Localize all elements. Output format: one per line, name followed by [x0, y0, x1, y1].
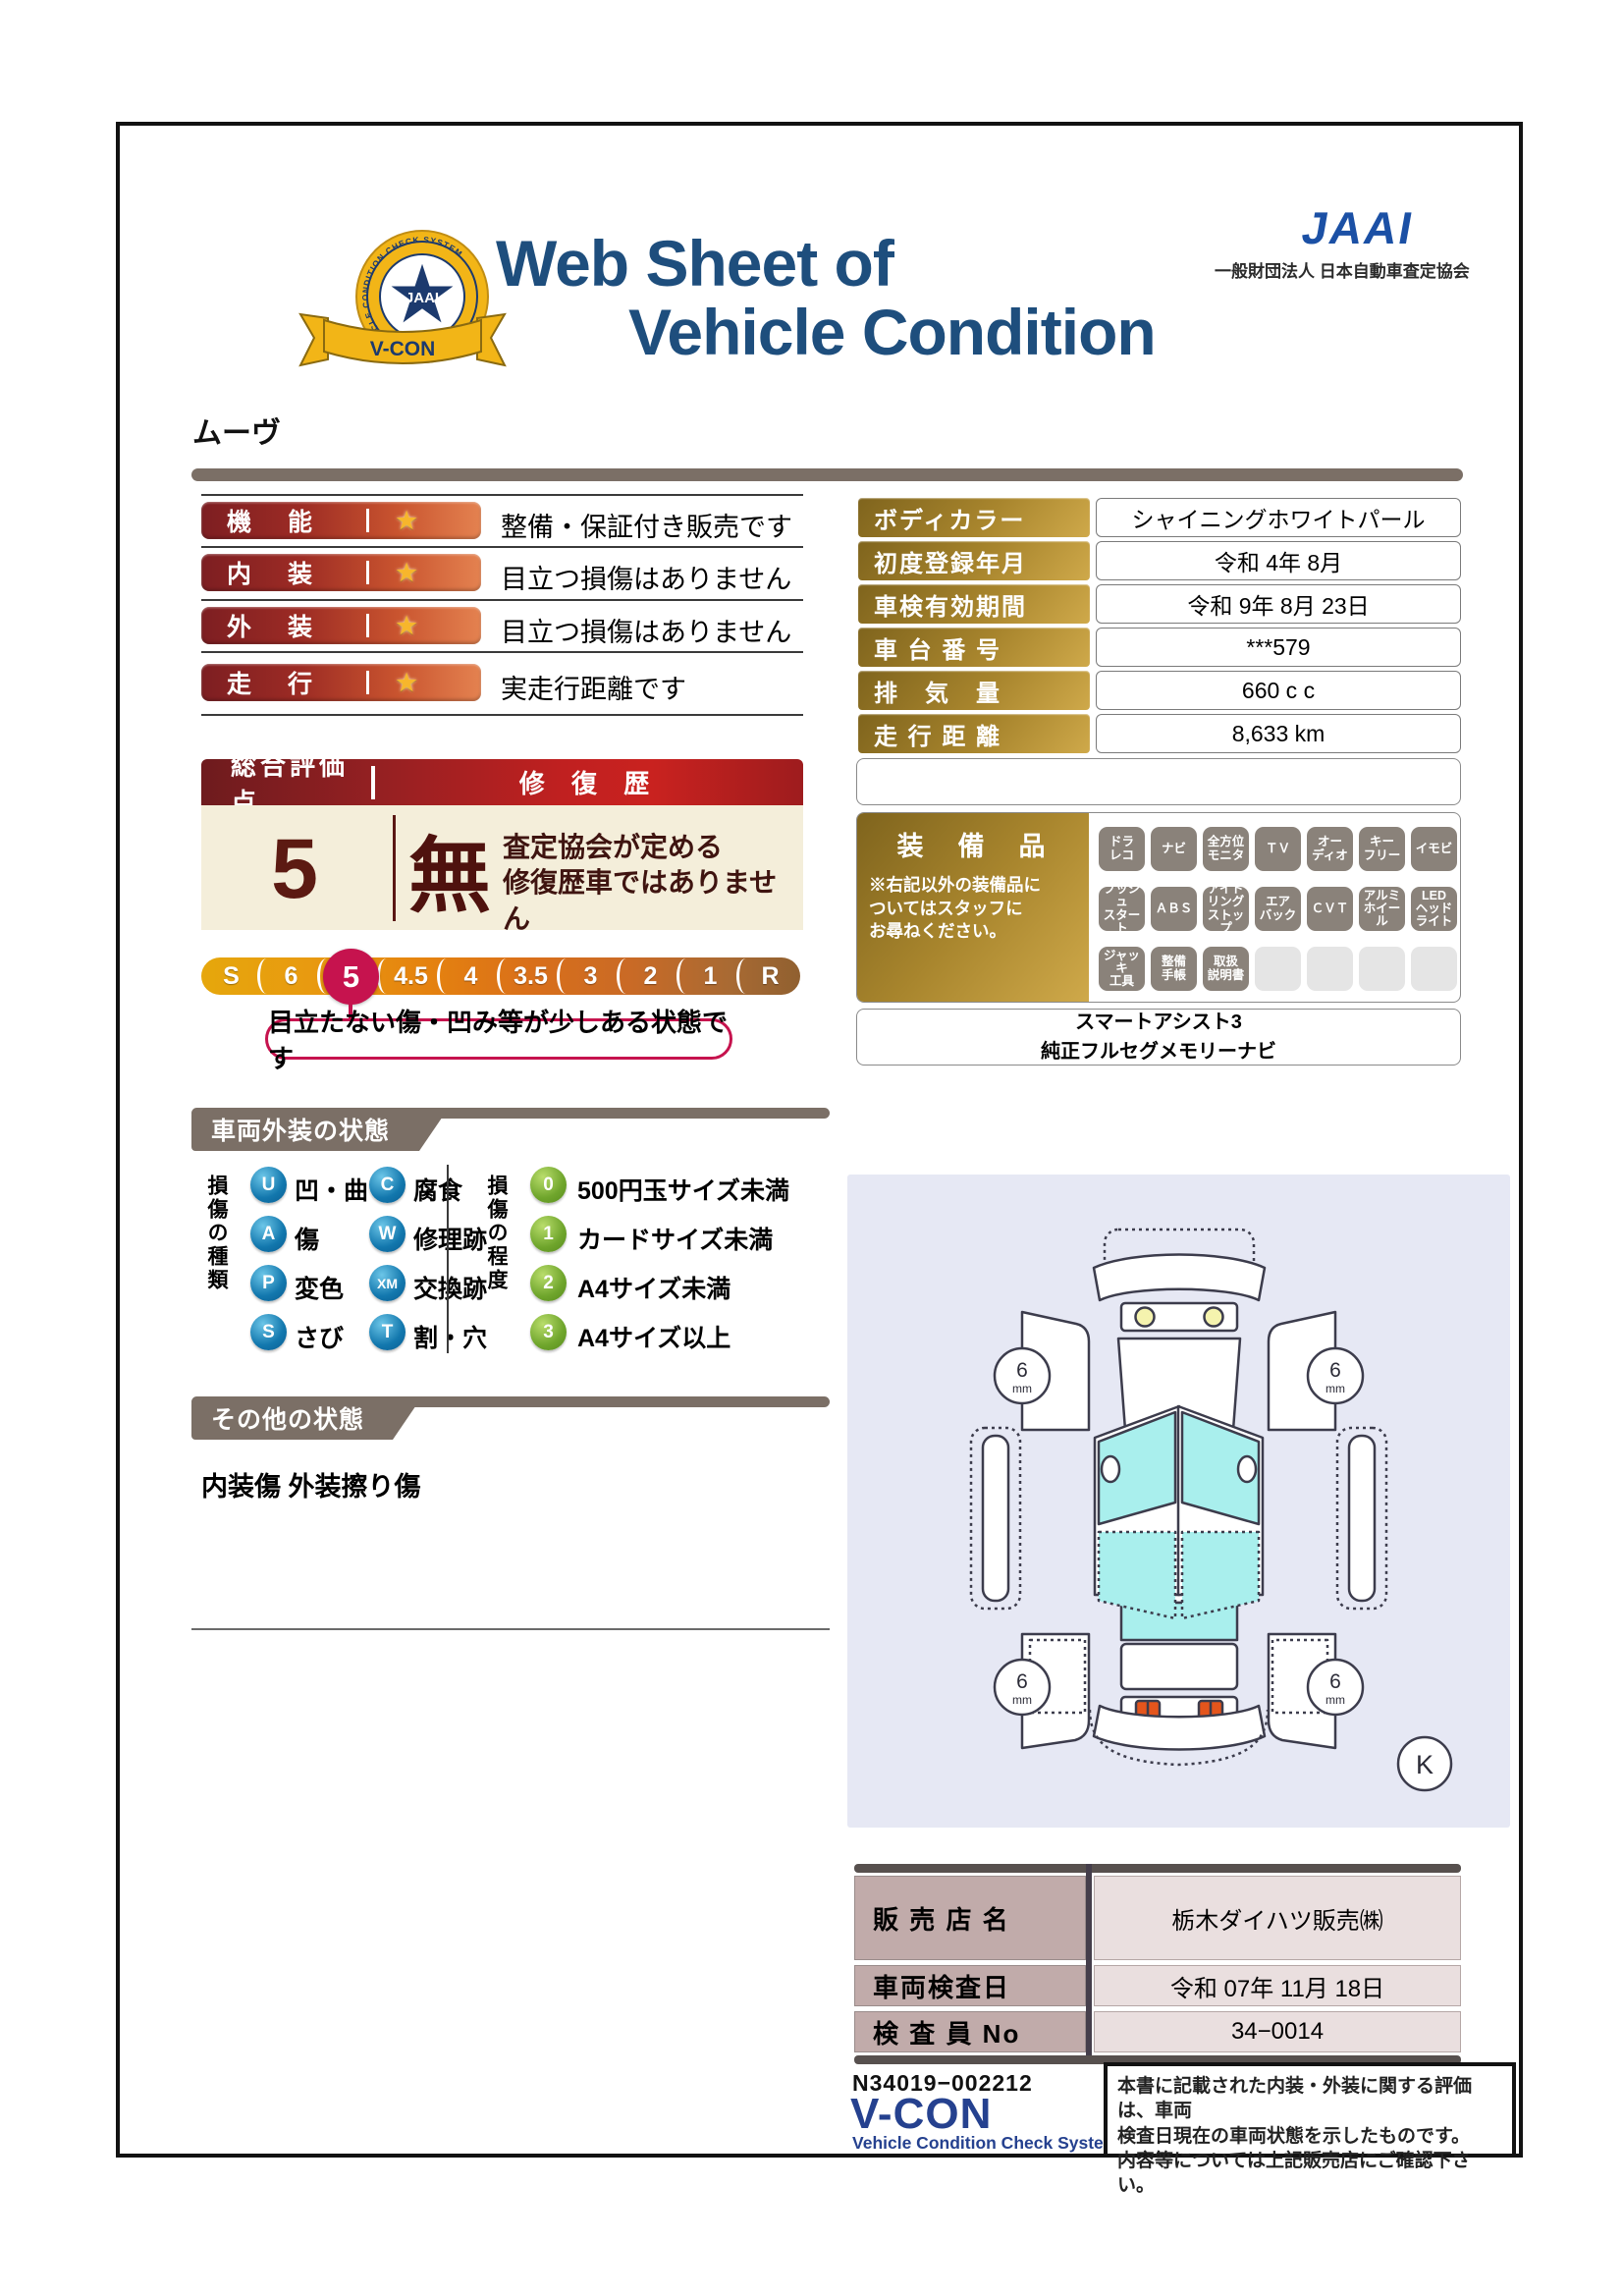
info-label: 走 行 距 離 [858, 714, 1090, 753]
overall-score-header: 総合評価点 修 復 歴 [201, 759, 803, 805]
vcon-logo: V-CON [850, 2090, 992, 2139]
damage-type-label: 交換跡 [413, 1270, 487, 1305]
tread-unit: mm [1012, 1693, 1032, 1707]
damage-type-label: 割・穴 [413, 1319, 487, 1354]
selected-grade-marker: 5 [323, 949, 379, 1005]
equipment-gold-panel: 装 備 品 ※右記以外の装備品に ついてはスタッフに お尋ねください。 [857, 813, 1089, 1002]
info-row: 排 気 量 660 c c [858, 671, 1461, 710]
damage-degree-badge-3: 3 [530, 1314, 567, 1350]
equipment-badge: LED ヘッド ライト [1411, 887, 1457, 931]
info-row: 車 台 番 号 ***579 [858, 628, 1461, 667]
scale-grade-3_5: 3.5 [501, 957, 561, 995]
rating-comment: 実走行距離です [501, 668, 686, 706]
info-row: 初度登録年月 令和 4年 8月 [858, 541, 1461, 580]
remarks-empty-box [856, 758, 1461, 805]
info-value: 令和 9年 8月 23日 [1096, 584, 1461, 624]
tread-unit: mm [1012, 1382, 1032, 1395]
info-row: 走 行 距 離 8,633 km [858, 714, 1461, 753]
extra-equipment-box: スマートアシスト3 純正フルセグメモリーナビ [856, 1009, 1461, 1066]
rating-comment: 目立つ損傷はありません [501, 558, 791, 596]
damage-type-badge-u: U [250, 1167, 287, 1203]
sheet-title-line1: Web Sheet of [496, 226, 893, 301]
dealer-table-top-bar [854, 1864, 1461, 1873]
equipment-title: 装 備 品 [857, 825, 1089, 863]
car-damage-diagram: 6 mm 6 mm 6 mm 6 mm K [847, 1175, 1510, 1828]
front-bumper [1094, 1255, 1265, 1301]
dealer-value: 34−0014 [1094, 2011, 1461, 2052]
dealer-label: 検 査 員 No [854, 2011, 1086, 2052]
rating-pill-exterior: 外 装 ★ [201, 607, 481, 644]
damage-degree-badge-2: 2 [530, 1265, 567, 1301]
scale-grade-1: 1 [680, 957, 740, 995]
dealer-table-divider [1086, 1864, 1092, 2061]
pill-divider [366, 509, 369, 532]
info-label: 排 気 量 [858, 671, 1090, 710]
dealer-value: 栃木ダイハツ販売㈱ [1094, 1876, 1461, 1960]
pill-divider [366, 614, 369, 637]
vcon-subtitle: Vehicle Condition Check System [852, 2133, 1118, 2154]
damage-degree-label: A4サイズ以上 [577, 1319, 730, 1354]
equipment-badge-empty [1307, 947, 1353, 991]
dealer-row: 販 売 店 名 栃木ダイハツ販売㈱ [854, 1876, 1461, 1960]
equipment-badge: プッシュ スタート [1099, 887, 1145, 931]
scale-grade-r: R [740, 957, 800, 995]
scale-grade-s: S [201, 957, 261, 995]
rating-label: 外 装 [201, 608, 366, 643]
overall-score-value: 5 [201, 811, 388, 927]
tread-unit: mm [1325, 1693, 1345, 1707]
equipment-badge: ドラ レコ [1099, 827, 1145, 871]
damage-degrees-label: 損傷の程度 [481, 1175, 511, 1292]
damage-type-label: 腐食 [413, 1172, 462, 1207]
damage-types-label: 損傷の種類 [201, 1175, 231, 1292]
damage-type-badge-a: A [250, 1216, 287, 1252]
equipment-badge: 取扱 説明書 [1203, 947, 1249, 991]
equipment-badge: オー ディオ [1307, 827, 1353, 871]
grade-scale-bar: S 6 4.5 4 3.5 3 2 1 R [201, 957, 800, 995]
headlight-left-icon [1136, 1308, 1155, 1327]
rating-comment: 目立つ損傷はありません [501, 611, 791, 649]
scale-grade-6: 6 [261, 957, 321, 995]
rating-comment: 整備・保証付き販売です [501, 506, 792, 544]
equipment-badge: アルミ ホイール [1359, 887, 1405, 931]
equipment-badge: エア バック [1255, 887, 1301, 931]
tread-unit: mm [1325, 1382, 1345, 1395]
overall-body-divider [393, 815, 396, 921]
jaai-logo: JAAI [1298, 201, 1418, 254]
info-value: 660 c c [1096, 671, 1461, 710]
equipment-box: 装 備 品 ※右記以外の装備品に ついてはスタッフに お尋ねください。 ドラ レ… [856, 812, 1461, 1003]
equipment-badge-empty [1255, 947, 1301, 991]
star-icon: ★ [395, 668, 418, 698]
rating-divider [201, 546, 803, 548]
rating-pill-mileage: 走 行 ★ [201, 664, 481, 701]
damage-type-label: 傷 [295, 1221, 319, 1256]
equipment-badge: ジャッキ 工具 [1099, 947, 1145, 991]
damage-type-label: 修理跡 [413, 1221, 487, 1256]
dealer-row: 検 査 員 No 34−0014 [854, 2011, 1461, 2052]
repair-history-note: 査定協会が定める 修復歴車ではありません [503, 830, 797, 937]
info-row: 車検有効期間 令和 9年 8月 23日 [858, 584, 1461, 624]
info-value: 令和 4年 8月 [1096, 541, 1461, 580]
tread-value: 6 [1016, 1359, 1028, 1382]
damage-type-badge-w: W [369, 1216, 406, 1252]
damage-degree-badge-0: 0 [530, 1167, 567, 1203]
pill-divider [366, 671, 369, 694]
damage-type-badge-xm: XM [369, 1265, 406, 1301]
damage-type-badge-s: S [250, 1314, 287, 1350]
exterior-section-title: 車両外装の状態 [191, 1108, 449, 1151]
legend-divider [447, 1165, 449, 1353]
repair-history-title: 修 復 歴 [375, 764, 803, 800]
damage-type-label: 凹・曲 [295, 1172, 368, 1207]
scale-grade-2: 2 [621, 957, 680, 995]
other-condition-note: 内装傷 外装擦り傷 [201, 1465, 421, 1503]
tread-value: 6 [1016, 1670, 1028, 1693]
info-row: ボディカラー シャイニングホワイトパール [858, 498, 1461, 537]
other-section-title: その他の状態 [191, 1396, 422, 1440]
headlight-right-icon [1205, 1308, 1223, 1327]
scale-grade-4_5: 4.5 [381, 957, 441, 995]
equipment-badge: キー フリー [1359, 827, 1405, 871]
damage-type-label: 変色 [295, 1270, 344, 1305]
tread-value: 6 [1329, 1359, 1341, 1382]
equipment-badge-empty [1411, 947, 1457, 991]
vcon-ribbon-icon: V-CON [295, 312, 511, 373]
equipment-badge: ナビ [1151, 827, 1197, 871]
scale-grade-3: 3 [561, 957, 621, 995]
damage-type-badge-p: P [250, 1265, 287, 1301]
damage-type-badge-c: C [369, 1167, 406, 1203]
top-separator [191, 468, 1463, 481]
damage-degree-label: A4サイズ未満 [577, 1270, 730, 1305]
equipment-note: ※右記以外の装備品に ついてはスタッフに お尋ねください。 [869, 874, 1041, 944]
tailgate-panel [1121, 1644, 1237, 1689]
dealer-label: 車両検査日 [854, 1965, 1086, 2006]
info-value: ***579 [1096, 628, 1461, 667]
equipment-badge: ＡＢＳ [1151, 887, 1197, 931]
other-section-rule [191, 1628, 830, 1630]
equipment-badge: ＣＶＴ [1307, 887, 1353, 931]
equipment-badge-empty [1359, 947, 1405, 991]
pill-divider [366, 561, 369, 584]
sheet-title-line2: Vehicle Condition [628, 295, 1156, 369]
equipment-badge: ＴＶ [1255, 827, 1301, 871]
info-label: 初度登録年月 [858, 541, 1090, 580]
star-icon: ★ [395, 506, 418, 536]
rating-pill-function: 機 能 ★ [201, 502, 481, 539]
dealer-label: 販 売 店 名 [854, 1876, 1086, 1960]
rating-divider [201, 494, 803, 496]
rating-divider [201, 714, 803, 716]
tread-value: 6 [1329, 1670, 1341, 1693]
rating-divider [201, 599, 803, 601]
rating-label: 内 装 [201, 555, 366, 590]
damage-type-label: さび [295, 1319, 344, 1354]
info-label: ボディカラー [858, 498, 1090, 537]
grade-callout: 目立たない傷・凹み等が少しある状態です [265, 1018, 732, 1060]
rating-divider [201, 651, 803, 653]
badge-ribbon-text: V-CON [370, 338, 436, 360]
equipment-badge: 整備 手帳 [1151, 947, 1197, 991]
info-label: 車 台 番 号 [858, 628, 1090, 667]
info-value: シャイニングホワイトパール [1096, 498, 1461, 537]
vehicle-model-name: ムーヴ [192, 409, 281, 452]
equipment-badge: イモビ [1411, 827, 1457, 871]
equipment-badge: アイド リング ストップ [1203, 887, 1249, 931]
vehicle-condition-sheet: VEHICLE CONDITION CHECK SYSTEM ★ JAAI V-… [0, 0, 1623, 2296]
disclaimer-box: 本書に記載された内装・外装に関する評価は、車両 検査日現在の車両状態を示したもの… [1104, 2062, 1516, 2158]
rating-pill-interior: 内 装 ★ [201, 554, 481, 591]
damage-degree-badge-1: 1 [530, 1216, 567, 1252]
scale-grade-4: 4 [441, 957, 501, 995]
repair-history-status: 無 [401, 813, 499, 925]
star-icon: ★ [395, 611, 418, 641]
diagram-marker: K [1416, 1750, 1434, 1779]
jaai-organization-name: 一般財団法人 日本自動車査定協会 [1215, 257, 1470, 282]
rating-label: 走 行 [201, 665, 366, 700]
damage-degree-label: 500円玉サイズ未満 [577, 1172, 789, 1207]
info-value: 8,633 km [1096, 714, 1461, 753]
damage-degree-label: カードサイズ未満 [577, 1221, 773, 1256]
badge-center-text: JAAI [406, 290, 439, 306]
star-icon: ★ [395, 558, 418, 588]
equipment-badge: 全方位 モニタ [1203, 827, 1249, 871]
damage-type-badge-t: T [369, 1314, 406, 1350]
info-label: 車検有効期間 [858, 584, 1090, 624]
dealer-value: 令和 07年 11月 18日 [1094, 1965, 1461, 2006]
dealer-row: 車両検査日 令和 07年 11月 18日 [854, 1965, 1461, 2006]
rating-label: 機 能 [201, 503, 366, 538]
